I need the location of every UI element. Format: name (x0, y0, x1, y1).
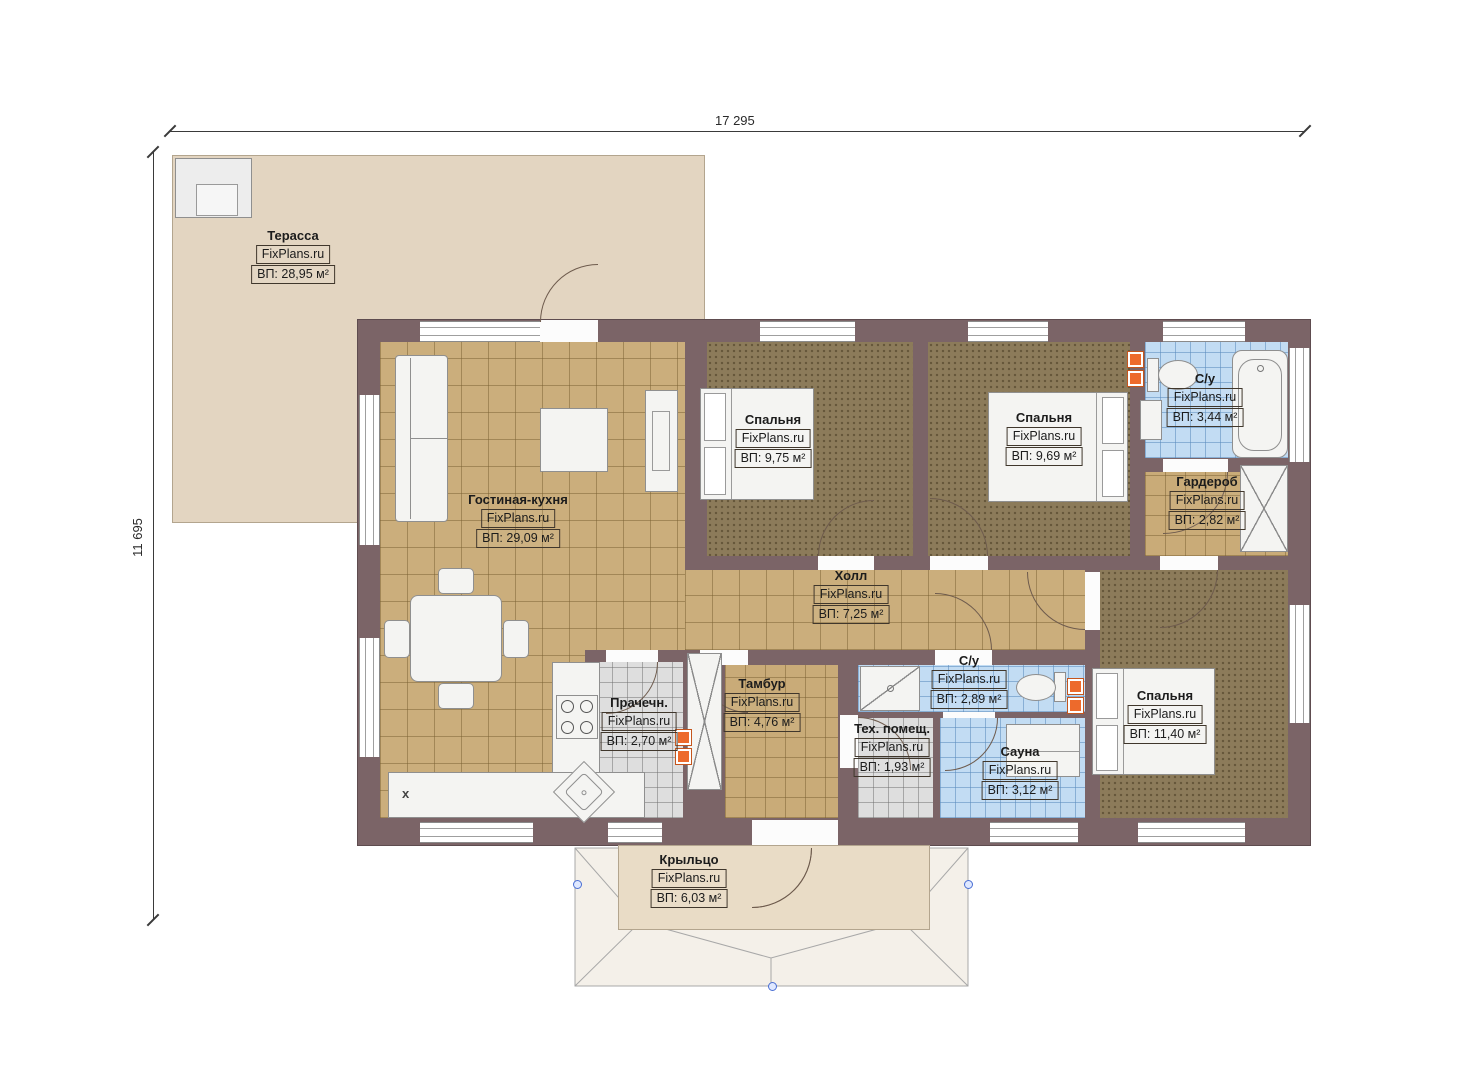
radiator-icon (676, 730, 691, 745)
watermark: FixPlans.ru (1168, 388, 1243, 407)
watermark: FixPlans.ru (983, 761, 1058, 780)
radiator-icon (1068, 679, 1083, 694)
watermark: FixPlans.ru (1007, 427, 1082, 446)
room-name: Спальня (745, 412, 801, 427)
watermark: FixPlans.ru (725, 693, 800, 712)
watermark: FixPlans.ru (602, 712, 677, 731)
room-name: Спальня (1137, 688, 1193, 703)
room-label-bathroom-top: С/у FixPlans.ru ВП: 3,44 м² (1167, 371, 1244, 427)
room-area: ВП: 28,95 м² (251, 265, 335, 284)
room-label-tech: Тех. помещ. FixPlans.ru ВП: 1,93 м² (854, 721, 931, 777)
watermark: FixPlans.ru (652, 869, 727, 888)
watermark: FixPlans.ru (736, 429, 811, 448)
room-name: С/у (959, 653, 979, 668)
watermark: FixPlans.ru (256, 245, 331, 264)
room-name: Спальня (1016, 410, 1072, 425)
room-area: ВП: 9,75 м² (735, 449, 812, 468)
room-name: Терасса (267, 228, 319, 243)
room-name: Гостиная-кухня (468, 492, 568, 507)
room-label-terrace: Терасса FixPlans.ru ВП: 28,95 м² (251, 228, 335, 284)
radiator-laundry (676, 730, 691, 764)
room-name: Тех. помещ. (854, 721, 930, 736)
floor-plan: 17 295 11 695 (0, 0, 1474, 1080)
porch-marker-bottom (768, 982, 777, 991)
room-area: ВП: 1,93 м² (854, 758, 931, 777)
room-area: ВП: 6,03 м² (651, 889, 728, 908)
watermark: FixPlans.ru (855, 738, 930, 757)
room-area: ВП: 2,70 м² (601, 732, 678, 751)
watermark: FixPlans.ru (932, 670, 1007, 689)
room-area: ВП: 2,82 м² (1169, 511, 1246, 530)
room-label-laundry: Прачечн. FixPlans.ru ВП: 2,70 м² (601, 695, 678, 751)
room-area: ВП: 4,76 м² (724, 713, 801, 732)
room-label-bedroom2: Спальня FixPlans.ru ВП: 9,69 м² (1006, 410, 1083, 466)
radiator-icon (676, 749, 691, 764)
watermark: FixPlans.ru (1170, 491, 1245, 510)
radiator-bath-top (1128, 352, 1143, 386)
room-area: ВП: 2,89 м² (931, 690, 1008, 709)
room-label-hall: Холл FixPlans.ru ВП: 7,25 м² (813, 568, 890, 624)
room-label-sauna: Сауна FixPlans.ru ВП: 3,12 м² (982, 744, 1059, 800)
watermark: FixPlans.ru (814, 585, 889, 604)
radiator-icon (1128, 371, 1143, 386)
room-label-wardrobe: Гардероб FixPlans.ru ВП: 2,82 м² (1169, 474, 1246, 530)
radiator-bath2 (1068, 679, 1083, 713)
room-name: Холл (835, 568, 868, 583)
room-label-living-kitchen: Гостиная-кухня FixPlans.ru ВП: 29,09 м² (468, 492, 568, 548)
watermark: FixPlans.ru (481, 509, 556, 528)
room-name: Гардероб (1176, 474, 1237, 489)
room-area: ВП: 11,40 м² (1124, 725, 1207, 744)
porch-marker-right (964, 880, 973, 889)
room-name: Тамбур (738, 676, 785, 691)
room-name: С/у (1195, 371, 1215, 386)
room-area: ВП: 7,25 м² (813, 605, 890, 624)
room-label-porch: Крыльцо FixPlans.ru ВП: 6,03 м² (651, 852, 728, 908)
room-label-bedroom3: Спальня FixPlans.ru ВП: 11,40 м² (1124, 688, 1207, 744)
room-name: Сауна (1000, 744, 1039, 759)
radiator-icon (1128, 352, 1143, 367)
room-area: ВП: 29,09 м² (476, 529, 560, 548)
room-label-vestibule: Тамбур FixPlans.ru ВП: 4,76 м² (724, 676, 801, 732)
porch-marker-left (573, 880, 582, 889)
room-area: ВП: 3,44 м² (1167, 408, 1244, 427)
room-area: ВП: 9,69 м² (1006, 447, 1083, 466)
kitchen-x-marker: x (402, 786, 409, 801)
room-name: Прачечн. (610, 695, 668, 710)
room-label-bathroom2: С/у FixPlans.ru ВП: 2,89 м² (931, 653, 1008, 709)
radiator-icon (1068, 698, 1083, 713)
room-area: ВП: 3,12 м² (982, 781, 1059, 800)
watermark: FixPlans.ru (1128, 705, 1203, 724)
room-label-bedroom1: Спальня FixPlans.ru ВП: 9,75 м² (735, 412, 812, 468)
room-name: Крыльцо (659, 852, 718, 867)
